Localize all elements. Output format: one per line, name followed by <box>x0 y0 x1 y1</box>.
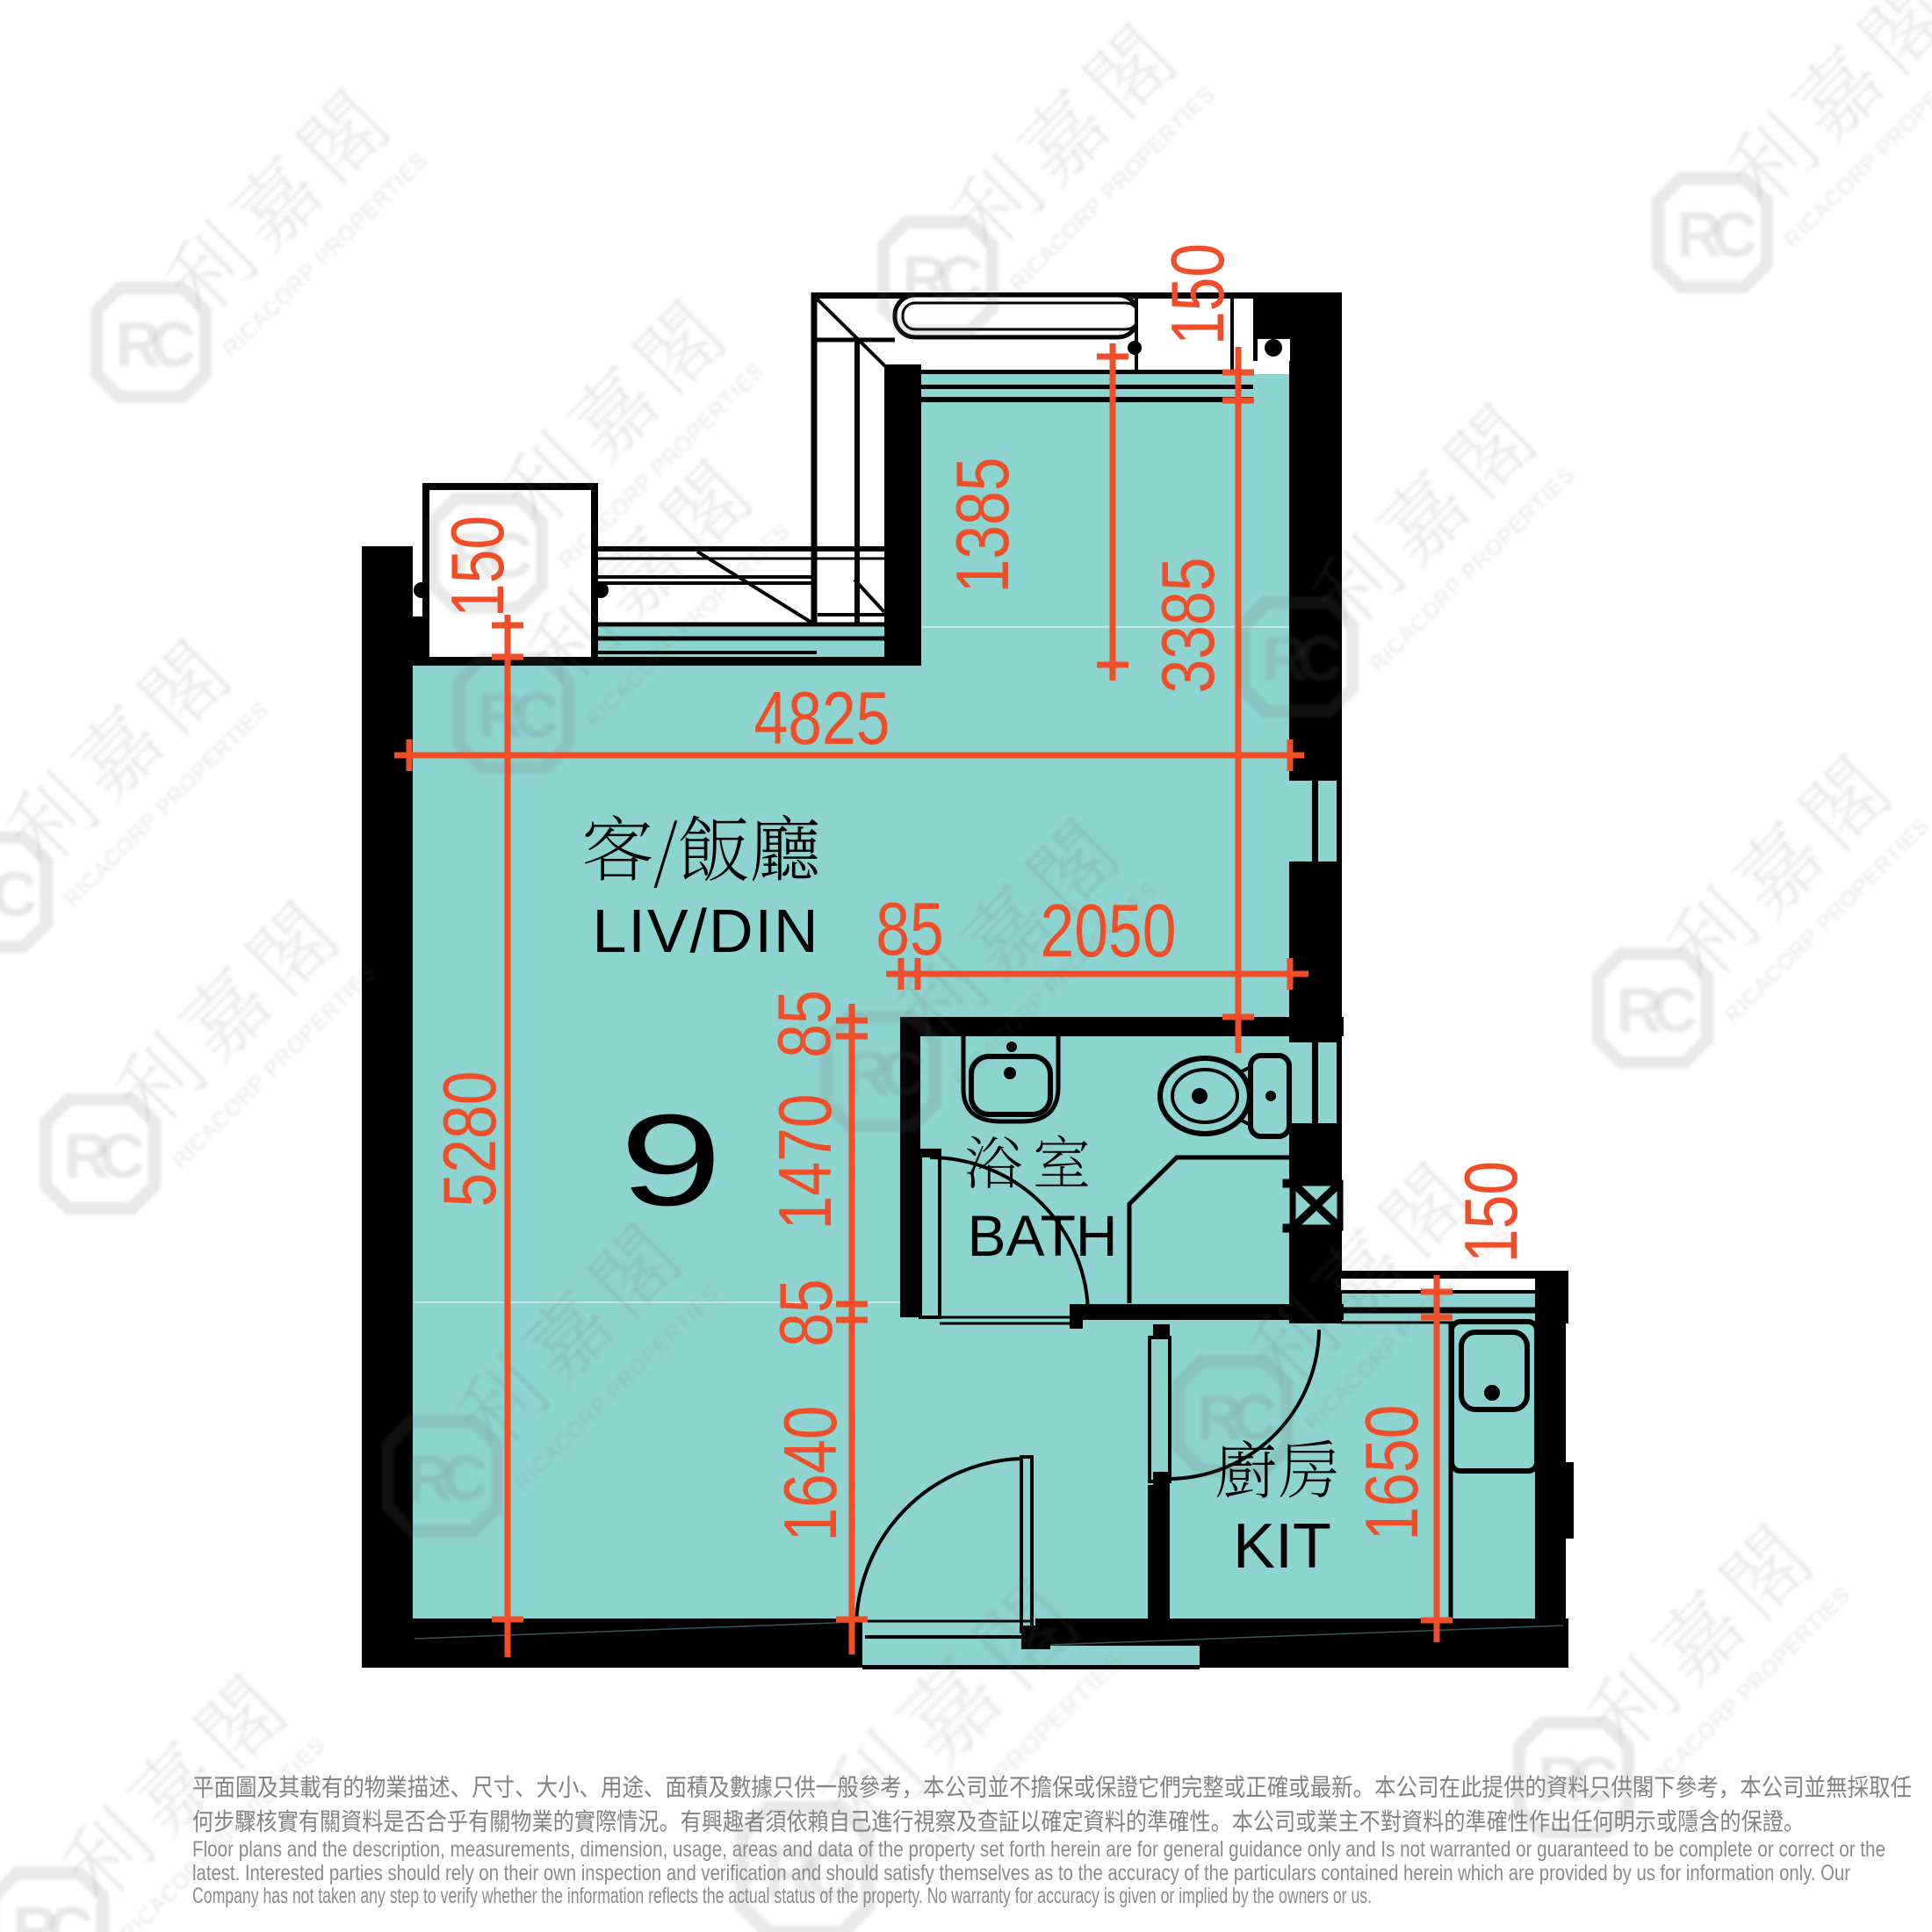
svg-text:Company has not taken any step: Company has not taken any step to verify… <box>192 1884 1372 1908</box>
svg-text:BATH: BATH <box>967 1203 1117 1268</box>
svg-text:1650: 1650 <box>1352 1404 1434 1540</box>
svg-text:LIV/DIN: LIV/DIN <box>592 897 819 965</box>
svg-text:5280: 5280 <box>429 1071 512 1207</box>
svg-text:150: 150 <box>1157 243 1240 345</box>
svg-text:2050: 2050 <box>1040 890 1176 973</box>
svg-text:Floor plans and the descriptio: Floor plans and the description, measure… <box>192 1837 1885 1862</box>
svg-text:4825: 4825 <box>753 678 890 761</box>
svg-text:85: 85 <box>766 1279 848 1347</box>
svg-text:85: 85 <box>764 990 847 1058</box>
svg-text:150: 150 <box>437 515 520 617</box>
svg-text:9: 9 <box>620 1087 723 1233</box>
svg-text:3385: 3385 <box>1148 557 1230 693</box>
svg-text:85: 85 <box>876 889 944 971</box>
svg-text:1640: 1640 <box>770 1405 853 1541</box>
svg-text:1470: 1470 <box>765 1093 847 1229</box>
svg-text:150: 150 <box>1451 1161 1533 1263</box>
svg-text:KIT: KIT <box>1233 1511 1331 1582</box>
svg-text:latest. Interested parties sho: latest. Interested parties should rely o… <box>192 1861 1850 1885</box>
svg-text:1385: 1385 <box>942 457 1025 593</box>
